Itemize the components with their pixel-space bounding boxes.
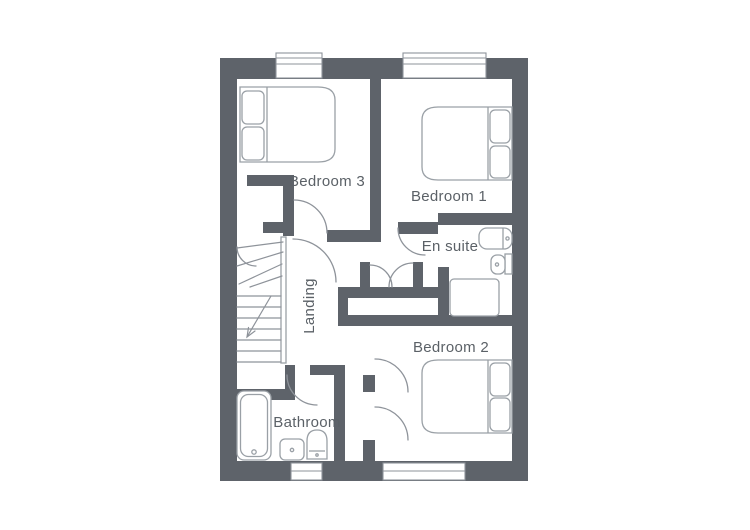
wall-bathroom-step	[285, 365, 295, 400]
outer-wall-left	[220, 58, 237, 481]
stair-direction-arrow	[247, 296, 271, 337]
bathroom-basin-icon	[280, 439, 304, 460]
window-bedroom3	[276, 53, 322, 78]
door-arc-cupboard-right	[389, 263, 413, 287]
label-bathroom: Bathroom	[273, 414, 340, 431]
door-arc-bedroom2-upper	[375, 359, 408, 392]
wall-bed3-south	[327, 230, 381, 242]
door-arc-closet	[237, 247, 256, 266]
label-landing: Landing	[301, 278, 318, 334]
bathroom-wc-icon	[307, 430, 327, 459]
label-bedroom1: Bedroom 1	[411, 188, 487, 205]
bedroom3-furniture	[240, 87, 335, 162]
bed3-pillow	[242, 91, 264, 124]
staircase	[237, 237, 286, 363]
wall-landing-cupboard-top	[338, 287, 438, 298]
window-bathroom	[291, 463, 322, 480]
outer-wall-bottom	[220, 461, 528, 481]
wall-landing-jamb-right	[413, 262, 423, 287]
door-arc-landing-west	[293, 239, 336, 282]
bedroom1-furniture	[422, 107, 512, 180]
window-bedroom1	[403, 53, 486, 78]
ensuite-shower-tray-icon	[450, 279, 499, 316]
bed3-pillow	[242, 127, 264, 160]
door-arc-bedroom3	[294, 200, 327, 233]
window-bedroom2	[383, 463, 465, 480]
wall-landing-jamb-left	[360, 262, 370, 287]
door-arc-bedroom2-lower	[375, 407, 408, 440]
wall-bed3-bed1-divider	[370, 78, 381, 241]
label-bedroom2: Bedroom 2	[413, 339, 489, 356]
ensuite-basin-icon	[479, 228, 512, 249]
wall-ensuite-north-west	[398, 222, 438, 234]
label-bedroom3: Bedroom 3	[289, 173, 365, 190]
stair-treads	[237, 296, 281, 362]
bed2-pillow	[490, 363, 510, 396]
wall-closet-stub	[263, 222, 294, 233]
wall-ensuite-north-east	[438, 213, 512, 225]
wall-bed2-west-upper	[363, 375, 375, 392]
bed1-pillow	[490, 146, 510, 178]
wall-bed2-west-lower	[363, 440, 375, 461]
bed1-pillow	[490, 110, 510, 143]
wall-bathroom-east	[334, 365, 345, 461]
floor-plan: Bedroom 3 Bedroom 1 En suite Landing Bed…	[0, 0, 750, 530]
bathroom-bath-icon	[237, 391, 271, 460]
wall-closet-top	[247, 175, 283, 186]
outer-wall-right	[512, 58, 528, 481]
stair-rail	[281, 237, 286, 363]
bedroom2-furniture	[422, 360, 512, 433]
bed2-pillow	[490, 398, 510, 431]
ensuite-wc-icon	[491, 254, 512, 274]
stair-winder-treads	[237, 242, 283, 287]
label-ensuite: En suite	[422, 238, 479, 255]
